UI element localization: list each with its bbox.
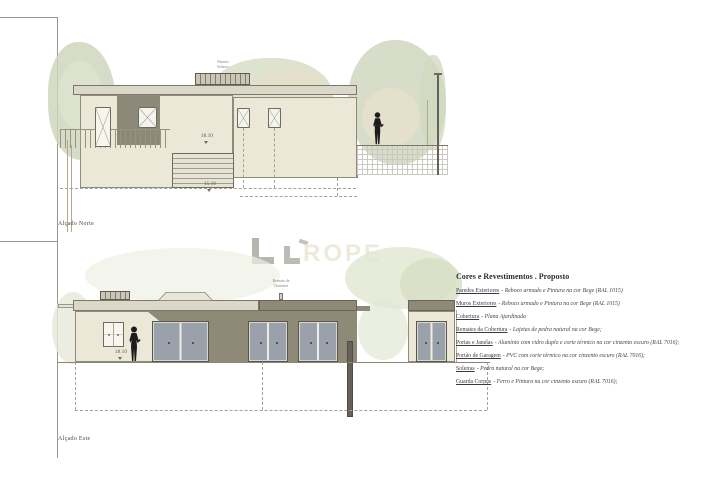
boundary-post-cap bbox=[434, 73, 442, 75]
elevation-label-north: Alçado Norte bbox=[58, 221, 94, 227]
skylight bbox=[158, 292, 213, 301]
retaining-wall bbox=[357, 145, 448, 175]
roof-annotation-line2: Solares bbox=[196, 65, 250, 70]
legend-item-label: Paredes Exteriores bbox=[456, 288, 499, 294]
roof-slab bbox=[73, 300, 259, 311]
gutter-line bbox=[58, 304, 74, 308]
legend-item: Soleiras- Pedra natural na cor Bege; bbox=[456, 366, 704, 379]
roof-annotation-line2: Chaminé bbox=[258, 284, 304, 289]
level-marker-icon bbox=[118, 357, 122, 360]
legend-item-label: Guarda Corpos bbox=[456, 379, 491, 385]
tree-canopy bbox=[420, 55, 446, 150]
tree-trunk bbox=[427, 100, 428, 145]
sliding-glass-door bbox=[298, 321, 338, 362]
foundation-dashed-line bbox=[337, 178, 338, 196]
ground-dashed-line bbox=[60, 188, 356, 189]
person-figure bbox=[371, 111, 384, 146]
window bbox=[103, 322, 124, 347]
ground-line bbox=[58, 362, 490, 363]
person-figure bbox=[127, 326, 141, 362]
legend-item: Guarda Corpos- Ferro e Pintura na cor ci… bbox=[456, 379, 704, 392]
level-value-upper: 18.10 bbox=[192, 134, 222, 139]
legend-item-desc: - Alumínio com vidro duplo e corte térmi… bbox=[495, 340, 680, 346]
boundary-post bbox=[437, 74, 439, 175]
roof-annotation: Paineis Solares bbox=[196, 60, 250, 69]
exterior-wall-right bbox=[233, 97, 357, 178]
legend-item-label: Soleiras bbox=[456, 366, 475, 372]
sliding-glass-door bbox=[152, 321, 209, 362]
foundation-dashed-line bbox=[262, 362, 263, 410]
roof-slab-annex bbox=[408, 300, 455, 311]
tree-trunk bbox=[67, 140, 68, 232]
foundation-dashed-line bbox=[75, 410, 487, 411]
elevation-label-east: Alçado Este bbox=[58, 436, 90, 442]
watermark-logo-icon bbox=[284, 246, 300, 264]
legend-item-label: Muros Exteriores bbox=[456, 301, 496, 307]
roof-slab-shaded bbox=[259, 300, 357, 311]
level-marker-icon bbox=[207, 189, 211, 192]
legend-item-desc: - Plana Ajardinada bbox=[481, 314, 526, 320]
frame-line-top bbox=[0, 17, 57, 18]
legend-item-label: Cobertura bbox=[456, 314, 479, 320]
level-value-lower: 15.10 bbox=[195, 182, 225, 187]
legend-item: Paredes Exteriores- Reboco armado e Pint… bbox=[456, 288, 704, 301]
foundation-dashed-line bbox=[240, 196, 357, 197]
legend-item: Remates da Cobertura- Lajetas de pedra n… bbox=[456, 327, 704, 340]
legend-item-desc: - Reboco armado e Pintura na cor Bege (R… bbox=[501, 288, 622, 294]
legend-item-desc: - Pedra natural na cor Bege; bbox=[477, 366, 544, 372]
chimney bbox=[279, 293, 283, 300]
legend-item-desc: - Reboco armado e Pintura na cor Bege (R… bbox=[498, 301, 619, 307]
legend-item-desc: - PVC com corte térmico na cor cinzento … bbox=[503, 353, 645, 359]
legend-title: Cores e Revestimentos . Proposto bbox=[456, 272, 704, 281]
legend-item-desc: - Lajetas de pedra natural na cor Bege; bbox=[510, 327, 602, 333]
window bbox=[268, 108, 281, 128]
legend-item-label: Remates da Cobertura bbox=[456, 327, 508, 333]
legend: Cores e Revestimentos . Proposto Paredes… bbox=[456, 272, 704, 392]
frame-line-middle bbox=[0, 241, 57, 242]
window bbox=[237, 108, 250, 128]
sliding-glass-door bbox=[416, 321, 447, 362]
legend-item-label: Portão de Garagem bbox=[456, 353, 501, 359]
foundation-dashed-line bbox=[75, 362, 76, 410]
legend-item-label: Portas e Janelas bbox=[456, 340, 493, 346]
legend-item: Muros Exteriores- Reboco armado e Pintur… bbox=[456, 301, 704, 314]
entry-door bbox=[95, 107, 111, 147]
drawing-sheet: Paineis Solares 18.10 15.10 Alçado Norte bbox=[0, 0, 705, 498]
level-marker-icon bbox=[204, 141, 208, 144]
roof-slab bbox=[73, 85, 357, 95]
legend-item: Portas e Janelas- Alumínio com vidro dup… bbox=[456, 340, 704, 353]
level-value-ground: 18.10 bbox=[106, 350, 136, 355]
window-projection-line bbox=[243, 128, 244, 188]
sliding-glass-door bbox=[248, 321, 288, 362]
legend-item: Portão de Garagem- PVC com corte térmico… bbox=[456, 353, 704, 366]
solar-panel-array bbox=[100, 291, 130, 300]
roof-annotation: Remate de Chaminé bbox=[258, 279, 304, 288]
window-projection-line bbox=[274, 128, 275, 188]
legend-item-desc: - Ferro e Pintura na cor cinzento escuro… bbox=[493, 379, 617, 385]
roof-overhang bbox=[357, 306, 370, 311]
gate-post bbox=[347, 341, 353, 417]
legend-item: Cobertura- Plana Ajardinada bbox=[456, 314, 704, 327]
window bbox=[138, 107, 157, 128]
balcony-railing bbox=[60, 129, 170, 148]
solar-panel-array bbox=[195, 73, 250, 85]
